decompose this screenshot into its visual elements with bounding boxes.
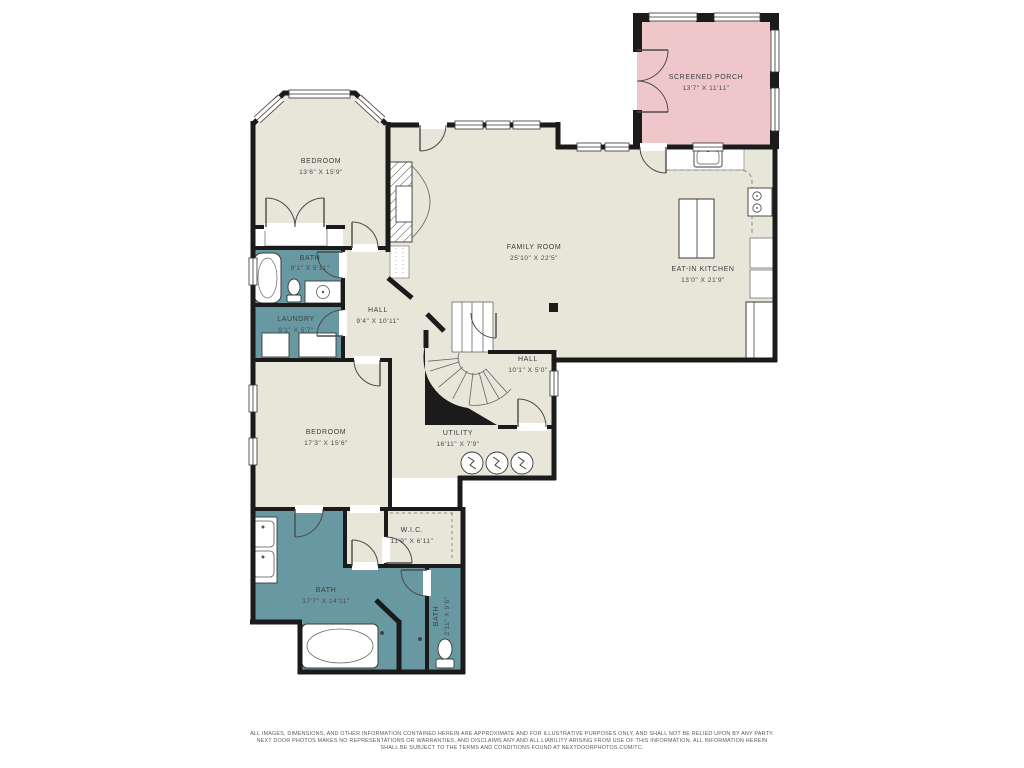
dims-eat-in-kitchen: 13'0" X 21'9" <box>681 277 725 284</box>
label-bath-2: BATH <box>316 587 337 594</box>
bathtub-icon <box>302 624 378 668</box>
disclaimer: ALL IMAGES, DIMENSIONS, AND OTHER INFORM… <box>250 731 774 751</box>
label-laundry: LAUNDRY <box>277 316 315 323</box>
closet <box>265 229 327 246</box>
dims-family-room: 25'10" X 22'5" <box>510 255 558 262</box>
vestibule <box>345 509 386 566</box>
water-heater-icon <box>461 452 533 474</box>
label-bath-3: BATH <box>433 606 440 627</box>
sink-icon <box>305 281 341 303</box>
label-family-room: FAMILY ROOM <box>507 244 562 251</box>
dims-bedroom-2: 17'3" X 15'6" <box>304 440 348 447</box>
disclaimer-line-1: ALL IMAGES, DIMENSIONS, AND OTHER INFORM… <box>250 731 774 737</box>
dims-laundry: 9'1" X 5'7" <box>278 327 314 334</box>
label-bath-1: BATH <box>300 255 321 262</box>
kitchen-island <box>679 199 714 258</box>
dims-screened-porch: 13'7" X 11'11" <box>683 85 730 92</box>
dims-hall-2: 10'1" X 5'0" <box>508 367 548 374</box>
label-utility: UTILITY <box>443 430 473 437</box>
bathtub-icon <box>254 253 281 303</box>
column <box>549 303 558 312</box>
room-hall-1 <box>345 248 430 360</box>
label-hall-1: HALL <box>368 307 388 314</box>
dims-bath-1: 9'1" X 5'11" <box>290 265 329 272</box>
label-screened-porch: SCREENED PORCH <box>669 74 744 81</box>
dims-hall-1: 9'4" X 10'11" <box>356 318 399 325</box>
room-eat-in-kitchen <box>558 145 775 360</box>
floor-plan: SCREENED PORCH 13'7" X 11'11" BEDROOM 13… <box>0 0 1024 768</box>
dims-bath-2: 17'7" X 14'11" <box>302 598 350 605</box>
washer-icon <box>262 333 289 357</box>
toilet-icon <box>287 279 301 302</box>
room-screened-porch <box>637 17 775 145</box>
label-eat-in-kitchen: EAT-IN KITCHEN <box>671 266 734 273</box>
dims-bedroom-1: 13'6" X 15'9" <box>299 169 343 176</box>
dims-bath-3: 2'11" X 9'6" <box>444 596 451 635</box>
stove-icon <box>748 188 772 216</box>
label-hall-2: HALL <box>518 356 538 363</box>
label-wic: W.I.C. <box>401 527 424 534</box>
disclaimer-line-2: NEXT DOOR PHOTOS MAKES NO REPRESENTATION… <box>257 738 768 744</box>
disclaimer-line-3: SHALL BE SUBJECT TO THE TERMS AND CONDIT… <box>380 745 643 751</box>
label-bedroom-2: BEDROOM <box>306 429 346 436</box>
label-bedroom-1: BEDROOM <box>301 158 341 165</box>
refrigerator-icon <box>746 302 776 358</box>
dims-utility: 16'11" X 7'9" <box>436 441 479 448</box>
dims-wic: 11'9" X 6'11" <box>391 538 434 545</box>
